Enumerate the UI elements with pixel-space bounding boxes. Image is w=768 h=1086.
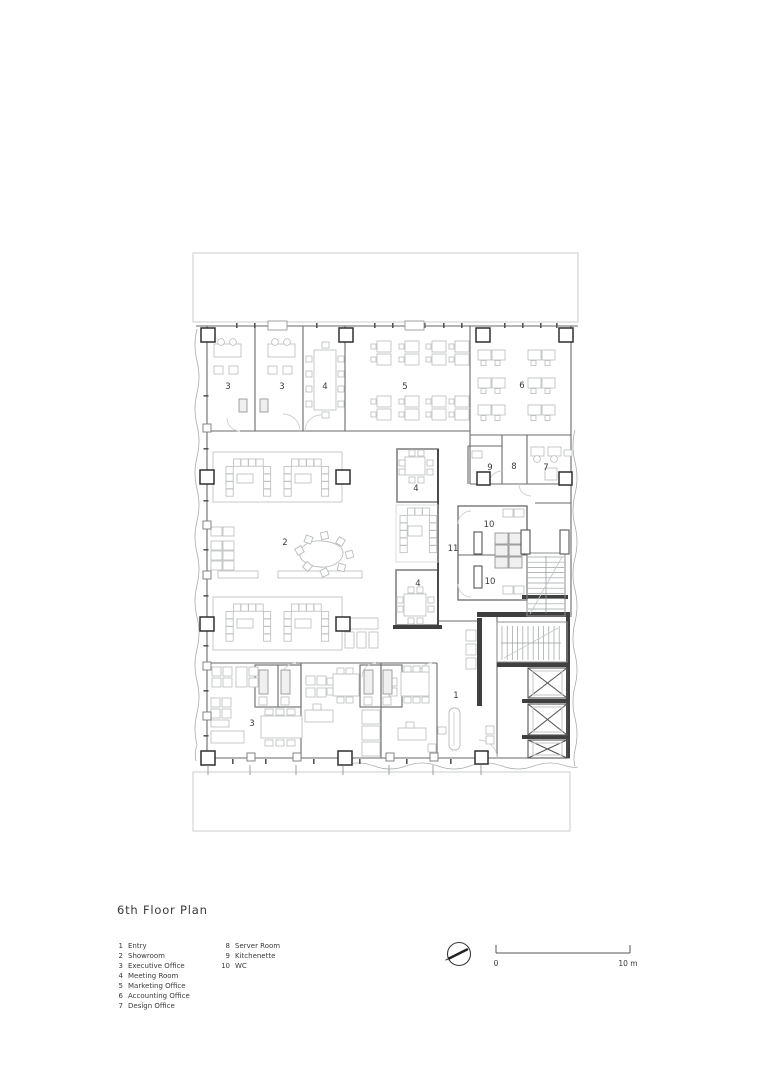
- furniture-item: [548, 447, 561, 456]
- furniture-item: [528, 405, 541, 415]
- fixture: [509, 545, 522, 556]
- furniture-item: [492, 350, 505, 360]
- furniture-item: [313, 704, 321, 710]
- room-label: 10: [484, 520, 495, 530]
- furniture-item: [430, 523, 437, 530]
- furniture-item: [369, 632, 378, 648]
- furniture-item: [542, 405, 555, 415]
- furniture-item: [223, 527, 234, 536]
- furniture-item: [299, 604, 306, 611]
- furniture-item: [432, 341, 446, 352]
- furniture-item: [503, 509, 513, 517]
- furniture-item: [226, 619, 233, 626]
- furniture-item: [306, 386, 312, 392]
- furniture-item: [276, 740, 284, 746]
- room-label: 6: [519, 381, 524, 391]
- column: [200, 617, 214, 631]
- furniture-item: [449, 357, 454, 362]
- furniture-item: [495, 389, 500, 394]
- furniture-item: [449, 412, 454, 417]
- furniture-item: [268, 366, 277, 374]
- furniture-item: [327, 678, 333, 685]
- furniture-item: [481, 361, 486, 366]
- column: [336, 617, 350, 631]
- furniture-item: [264, 627, 271, 634]
- stairs: [497, 553, 567, 662]
- fixture: [259, 670, 268, 694]
- fixture: [495, 533, 508, 544]
- page: 6th Floor Plan 1Entry2Showroom3Executive…: [0, 0, 768, 1086]
- furniture-item: [545, 361, 550, 366]
- scale-bar: 0 10 m: [494, 945, 638, 968]
- furniture-item: [426, 357, 431, 362]
- column: [339, 328, 353, 342]
- furniture-item: [404, 697, 411, 703]
- furniture-item: [430, 538, 437, 545]
- furniture-item: [265, 740, 273, 746]
- furniture-item: [397, 597, 403, 603]
- furniture-item: [283, 366, 292, 374]
- column: [559, 328, 573, 342]
- fixture: [239, 399, 247, 412]
- room-label: 2: [282, 538, 287, 548]
- furniture-item: [399, 344, 404, 349]
- furniture-item: [295, 474, 311, 483]
- door-panel: [521, 530, 530, 554]
- column-small: [203, 424, 211, 432]
- furniture-item: [427, 469, 433, 475]
- furniture-item: [249, 604, 256, 611]
- chair: [272, 339, 279, 346]
- furniture-item: [211, 731, 244, 743]
- furniture-item: [426, 412, 431, 417]
- furniture-item: [404, 666, 411, 672]
- fixture: [364, 670, 373, 694]
- furniture-item: [399, 412, 404, 417]
- furniture-item: [256, 459, 263, 466]
- break-line-left: [195, 329, 199, 761]
- furniture-item: [214, 344, 241, 357]
- context-block-bottom: [193, 772, 570, 831]
- furniture-item: [455, 409, 469, 420]
- furniture-item: [338, 401, 344, 407]
- furniture-item: [284, 474, 291, 481]
- chair: [337, 563, 346, 572]
- door-panel: [560, 530, 569, 554]
- furniture-item: [337, 697, 344, 703]
- furniture-item: [406, 722, 414, 728]
- furniture-item: [400, 531, 407, 538]
- furniture-item: [264, 489, 271, 496]
- furniture-item: [400, 523, 407, 530]
- north-arrow-icon: [446, 943, 471, 966]
- furniture-item: [426, 399, 431, 404]
- chair: [284, 339, 291, 346]
- furniture-item: [322, 619, 329, 626]
- room-label: 4: [415, 579, 420, 589]
- furniture-item: [531, 447, 544, 456]
- door-panel: [474, 566, 482, 588]
- column: [338, 751, 352, 765]
- furniture-item: [531, 361, 536, 366]
- furniture-item: [545, 416, 550, 421]
- furniture-item: [413, 666, 420, 672]
- furniture-item: [306, 401, 312, 407]
- furniture-item: [241, 604, 248, 611]
- furniture-item: [307, 459, 314, 466]
- furniture-item: [564, 450, 572, 456]
- furniture-item: [223, 561, 234, 570]
- furniture-item: [531, 416, 536, 421]
- room-label: 5: [402, 382, 407, 392]
- fixture: [495, 545, 508, 556]
- furniture-item: [430, 516, 437, 523]
- furniture-item: [408, 526, 422, 536]
- furniture-item: [237, 474, 253, 483]
- furniture-item: [305, 710, 333, 722]
- furniture-item: [478, 350, 491, 360]
- furniture-item: [259, 697, 267, 705]
- furniture-item: [371, 412, 376, 417]
- furniture-item: [362, 726, 380, 740]
- furniture-item: [455, 396, 469, 407]
- furniture-item: [415, 508, 422, 515]
- furniture-item: [322, 474, 329, 481]
- reception-desk: [449, 708, 460, 750]
- furniture-item: [284, 619, 291, 626]
- furniture-item: [514, 586, 524, 594]
- furniture-item: [481, 416, 486, 421]
- column-small: [430, 753, 438, 761]
- furniture-item: [276, 709, 284, 715]
- furniture-item: [362, 710, 380, 724]
- room-label: 1: [453, 691, 458, 701]
- furniture-item: [432, 409, 446, 420]
- furniture-item: [327, 688, 333, 695]
- furniture-item: [264, 482, 271, 489]
- furniture-item: [531, 389, 536, 394]
- furniture-item: [211, 551, 222, 560]
- room-label: 8: [511, 462, 516, 472]
- furniture-item: [292, 459, 299, 466]
- furniture-item: [466, 644, 476, 655]
- furniture-item: [234, 459, 241, 466]
- furniture-item: [284, 612, 291, 619]
- fixture: [509, 533, 522, 544]
- furniture-item: [417, 618, 423, 624]
- furniture-item: [409, 477, 415, 483]
- furniture-item: [481, 389, 486, 394]
- furniture-item: [418, 477, 424, 483]
- furniture-item: [223, 678, 232, 687]
- furniture-item: [405, 354, 419, 365]
- furniture-item: [338, 356, 344, 362]
- furniture-item: [383, 697, 391, 705]
- furniture-item: [413, 697, 420, 703]
- furniture-item: [322, 634, 329, 641]
- furniture-item: [430, 531, 437, 538]
- furniture-item: [284, 634, 291, 641]
- column-small: [247, 753, 255, 761]
- chair: [218, 339, 225, 346]
- furniture-item: [265, 709, 273, 715]
- column: [201, 328, 215, 342]
- furniture-item: [438, 727, 446, 734]
- furniture-item: [284, 482, 291, 489]
- fixture: [281, 670, 290, 694]
- furniture-item: [264, 467, 271, 474]
- furniture-item: [226, 482, 233, 489]
- furniture-item: [405, 457, 425, 475]
- furniture-item: [398, 728, 426, 740]
- furniture-item: [226, 489, 233, 496]
- furniture-item: [345, 632, 354, 648]
- furniture-item: [466, 630, 476, 641]
- furniture-item: [528, 378, 541, 388]
- fixture: [260, 399, 268, 412]
- furniture-item: [400, 538, 407, 545]
- furniture-item: [234, 604, 241, 611]
- furniture-item: [401, 672, 429, 696]
- furniture-item: [449, 399, 454, 404]
- furniture-item: [426, 344, 431, 349]
- fixture: [509, 557, 522, 568]
- furniture-item: [357, 632, 366, 648]
- furniture-item: [399, 460, 405, 466]
- furniture-item: [322, 467, 329, 474]
- furniture-item: [222, 698, 231, 707]
- furniture-item: [295, 619, 311, 628]
- furniture-item: [317, 676, 326, 685]
- furniture-item: [528, 350, 541, 360]
- furniture-item: [408, 618, 414, 624]
- furniture-item: [306, 371, 312, 377]
- furniture-item: [346, 697, 353, 703]
- furniture-item: [261, 716, 302, 738]
- scale-start-label: 0: [494, 959, 499, 968]
- room-label: 11: [448, 544, 459, 554]
- furniture-item: [211, 527, 222, 536]
- furniture-item: [214, 366, 223, 374]
- elevators: [528, 668, 567, 758]
- furniture-item: [371, 344, 376, 349]
- furniture-item: [408, 587, 414, 593]
- scale-end-label: 10 m: [618, 959, 637, 968]
- chair: [534, 456, 541, 463]
- furniture-item: [223, 551, 234, 560]
- furniture-item: [346, 668, 353, 674]
- furniture-item: [307, 604, 314, 611]
- room-label: 7: [543, 463, 548, 473]
- furniture-item: [472, 451, 482, 458]
- room-label: 3: [279, 382, 284, 392]
- furniture-item: [486, 726, 494, 734]
- furniture-item: [256, 604, 263, 611]
- furniture-item: [306, 676, 315, 685]
- chair: [320, 531, 328, 539]
- furniture-item: [423, 508, 430, 515]
- furniture-item: [284, 627, 291, 634]
- furniture-item: [314, 350, 336, 410]
- furniture-item: [299, 459, 306, 466]
- room-label: 10: [485, 577, 496, 587]
- furniture-item: [241, 459, 248, 466]
- furniture-item: [314, 604, 321, 611]
- furniture-item: [404, 594, 426, 616]
- furniture-item: [495, 416, 500, 421]
- furniture-item: [226, 627, 233, 634]
- furniture-item: [223, 667, 232, 676]
- furniture-item: [236, 667, 247, 687]
- furniture-item: [492, 405, 505, 415]
- furniture-item: [400, 546, 407, 553]
- column-small: [203, 521, 211, 529]
- furniture-item: [418, 450, 424, 456]
- furniture-item: [306, 688, 315, 697]
- furniture-item: [399, 469, 405, 475]
- room-label: 3: [249, 719, 254, 729]
- furniture-item: [399, 399, 404, 404]
- furniture-item: [287, 709, 295, 715]
- furniture-item: [264, 619, 271, 626]
- furniture-item: [226, 634, 233, 641]
- furniture-item: [397, 606, 403, 612]
- furniture-item: [478, 405, 491, 415]
- organic-table: [295, 531, 354, 577]
- furniture-item: [371, 357, 376, 362]
- column: [200, 470, 214, 484]
- furniture-item: [211, 720, 229, 727]
- furniture-item: [405, 396, 419, 407]
- furniture-item: [218, 571, 258, 578]
- chair: [551, 456, 558, 463]
- furniture-item: [292, 604, 299, 611]
- furniture-item: [317, 688, 326, 697]
- furniture-item: [211, 561, 222, 570]
- furniture-item: [226, 467, 233, 474]
- furniture-item: [322, 489, 329, 496]
- furniture-item: [281, 697, 289, 705]
- furniture-item: [249, 678, 258, 687]
- column: [475, 751, 488, 764]
- furniture-item: [322, 627, 329, 634]
- break-line-bottom: [342, 763, 578, 769]
- furniture-item: [264, 474, 271, 481]
- furniture-item: [338, 386, 344, 392]
- fixture: [383, 670, 392, 694]
- room-label: 3: [225, 382, 230, 392]
- furniture-item: [223, 541, 234, 550]
- furniture-item: [264, 634, 271, 641]
- furniture-item: [249, 459, 256, 466]
- furniture-item: [428, 597, 434, 603]
- furniture-item: [422, 697, 429, 703]
- furniture-item: [545, 389, 550, 394]
- door-panel: [474, 532, 482, 554]
- furniture-item: [268, 344, 295, 357]
- column: [336, 470, 350, 484]
- furniture-item: [362, 742, 380, 756]
- column-small: [386, 753, 394, 761]
- furniture-item: [428, 744, 436, 752]
- furniture-item: [211, 541, 222, 550]
- fixture: [495, 557, 508, 568]
- furniture-item: [284, 467, 291, 474]
- room-label: 4: [413, 484, 418, 494]
- furniture-item: [222, 709, 231, 718]
- chair: [345, 550, 354, 559]
- column-small: [203, 662, 211, 670]
- furniture-item: [486, 736, 494, 744]
- furniture-item: [364, 697, 372, 705]
- column-small: [293, 753, 301, 761]
- furniture-item: [211, 698, 220, 707]
- furniture-item: [322, 482, 329, 489]
- furniture-item: [322, 342, 329, 348]
- furniture-item: [377, 354, 391, 365]
- furniture-item: [284, 489, 291, 496]
- column: [477, 472, 490, 485]
- furniture-item: [492, 378, 505, 388]
- furniture-item: [212, 667, 221, 676]
- furniture-item: [211, 709, 220, 718]
- furniture-item: [399, 357, 404, 362]
- furniture-item: [503, 586, 513, 594]
- column-small: [203, 571, 211, 579]
- column: [559, 472, 572, 485]
- furniture-item: [542, 350, 555, 360]
- furniture-item: [333, 674, 359, 696]
- furniture-item: [237, 619, 253, 628]
- furniture-item: [371, 399, 376, 404]
- furniture-item: [264, 612, 271, 619]
- furniture-item: [338, 371, 344, 377]
- furniture-item: [377, 409, 391, 420]
- column: [201, 751, 215, 765]
- furniture-item: [212, 678, 221, 687]
- furniture-item: [226, 612, 233, 619]
- furniture-item: [400, 516, 407, 523]
- furniture-item: [314, 459, 321, 466]
- room-label: 9: [487, 463, 492, 473]
- furniture-item: [478, 378, 491, 388]
- chair: [230, 339, 237, 346]
- furniture-item: [405, 341, 419, 352]
- furniture-item: [455, 354, 469, 365]
- furniture-item: [427, 460, 433, 466]
- furniture-item: [306, 356, 312, 362]
- furniture-item: [249, 667, 258, 676]
- column-small: [203, 712, 211, 720]
- furniture-item: [432, 396, 446, 407]
- furniture-item: [432, 354, 446, 365]
- furniture-item: [377, 396, 391, 407]
- context-block-top: [193, 253, 578, 322]
- furniture-item: [466, 658, 476, 669]
- room-label: 4: [322, 382, 327, 392]
- furniture-item: [542, 378, 555, 388]
- furniture-item: [322, 412, 329, 418]
- furniture-item: [422, 666, 429, 672]
- furniture-item: [408, 508, 415, 515]
- furniture-item: [409, 450, 415, 456]
- furniture-item: [226, 474, 233, 481]
- furniture-item: [449, 344, 454, 349]
- furniture-item: [495, 361, 500, 366]
- furniture-item: [337, 668, 344, 674]
- column: [476, 328, 490, 342]
- furniture-item: [287, 740, 295, 746]
